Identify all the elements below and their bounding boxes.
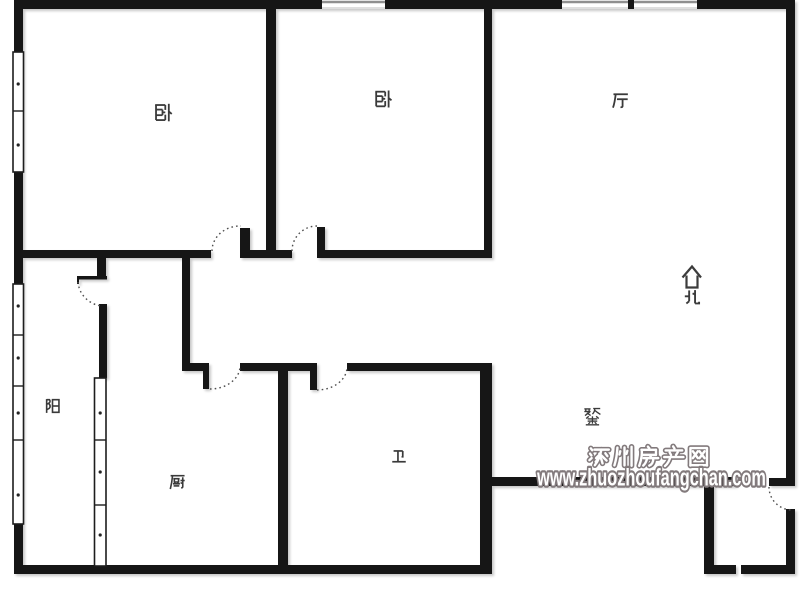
- svg-text:www.zhuozhoufangchan.com: www.zhuozhoufangchan.com: [536, 464, 765, 491]
